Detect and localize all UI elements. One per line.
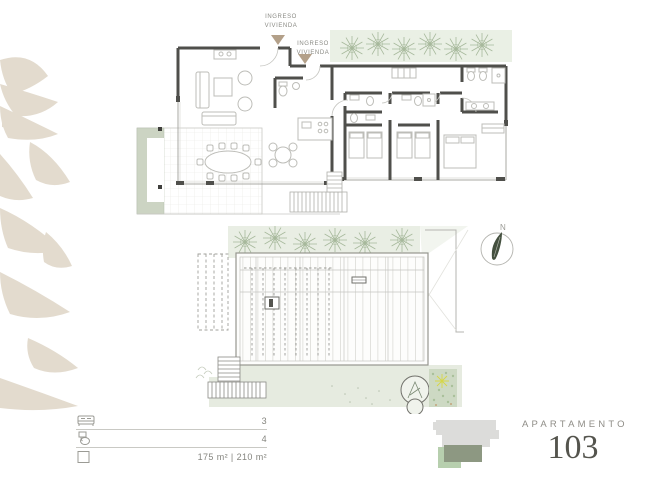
bathrooms-count: 4: [262, 434, 267, 444]
floor-plan: [130, 4, 562, 216]
legend: 3 4 175 m² | 210 m²: [76, 412, 267, 465]
page: INGRESO VIVIENDA INGRESO VIVIENDA: [0, 0, 645, 484]
area-icon: [76, 450, 91, 464]
roof-chimney: [265, 297, 279, 309]
area-value: 175 m² | 210 m²: [198, 452, 267, 462]
north-label: N: [500, 223, 506, 232]
bathroom-fixtures: [350, 68, 505, 123]
legend-row-area: 175 m² | 210 m²: [76, 448, 267, 465]
palm-leaf-decoration: [0, 50, 90, 420]
entry-arrow-1-icon: [271, 35, 285, 45]
living-room-furniture: [196, 50, 252, 125]
bed-icon: [76, 414, 96, 428]
plan-greenery: [330, 30, 512, 62]
bedroom-2-furniture: [397, 132, 430, 158]
bedroom-1-furniture: [349, 132, 382, 158]
stairs: [290, 172, 347, 212]
entry-label-1: INGRESO VIVIENDA: [256, 13, 306, 30]
north-compass: N: [472, 216, 524, 274]
pergola-dashed: [198, 254, 228, 330]
key-plan-highlighted-unit: [444, 445, 482, 462]
entry-label-2: INGRESO VIVIENDA: [290, 40, 336, 57]
title-block: APARTAMENTO 103: [522, 419, 624, 465]
kitchen: [298, 118, 332, 140]
flower-shrub: [435, 374, 449, 388]
apartment-number: 103: [522, 431, 624, 465]
breakfast-table: [269, 143, 297, 167]
guest-wc-fixtures: [279, 82, 300, 96]
planting-bed: [429, 369, 457, 407]
tree: [401, 376, 429, 414]
key-plan: [431, 416, 503, 472]
toilet-icon: [76, 431, 92, 446]
master-bedroom-furniture: [444, 124, 504, 168]
legend-row-bedrooms: 3: [76, 412, 267, 430]
north-needle-icon: [492, 232, 502, 260]
roof-plan: [160, 218, 510, 414]
legend-row-bathrooms: 4: [76, 430, 267, 448]
bedrooms-count: 3: [262, 416, 267, 426]
entry-arrow-2-icon: [298, 54, 312, 64]
